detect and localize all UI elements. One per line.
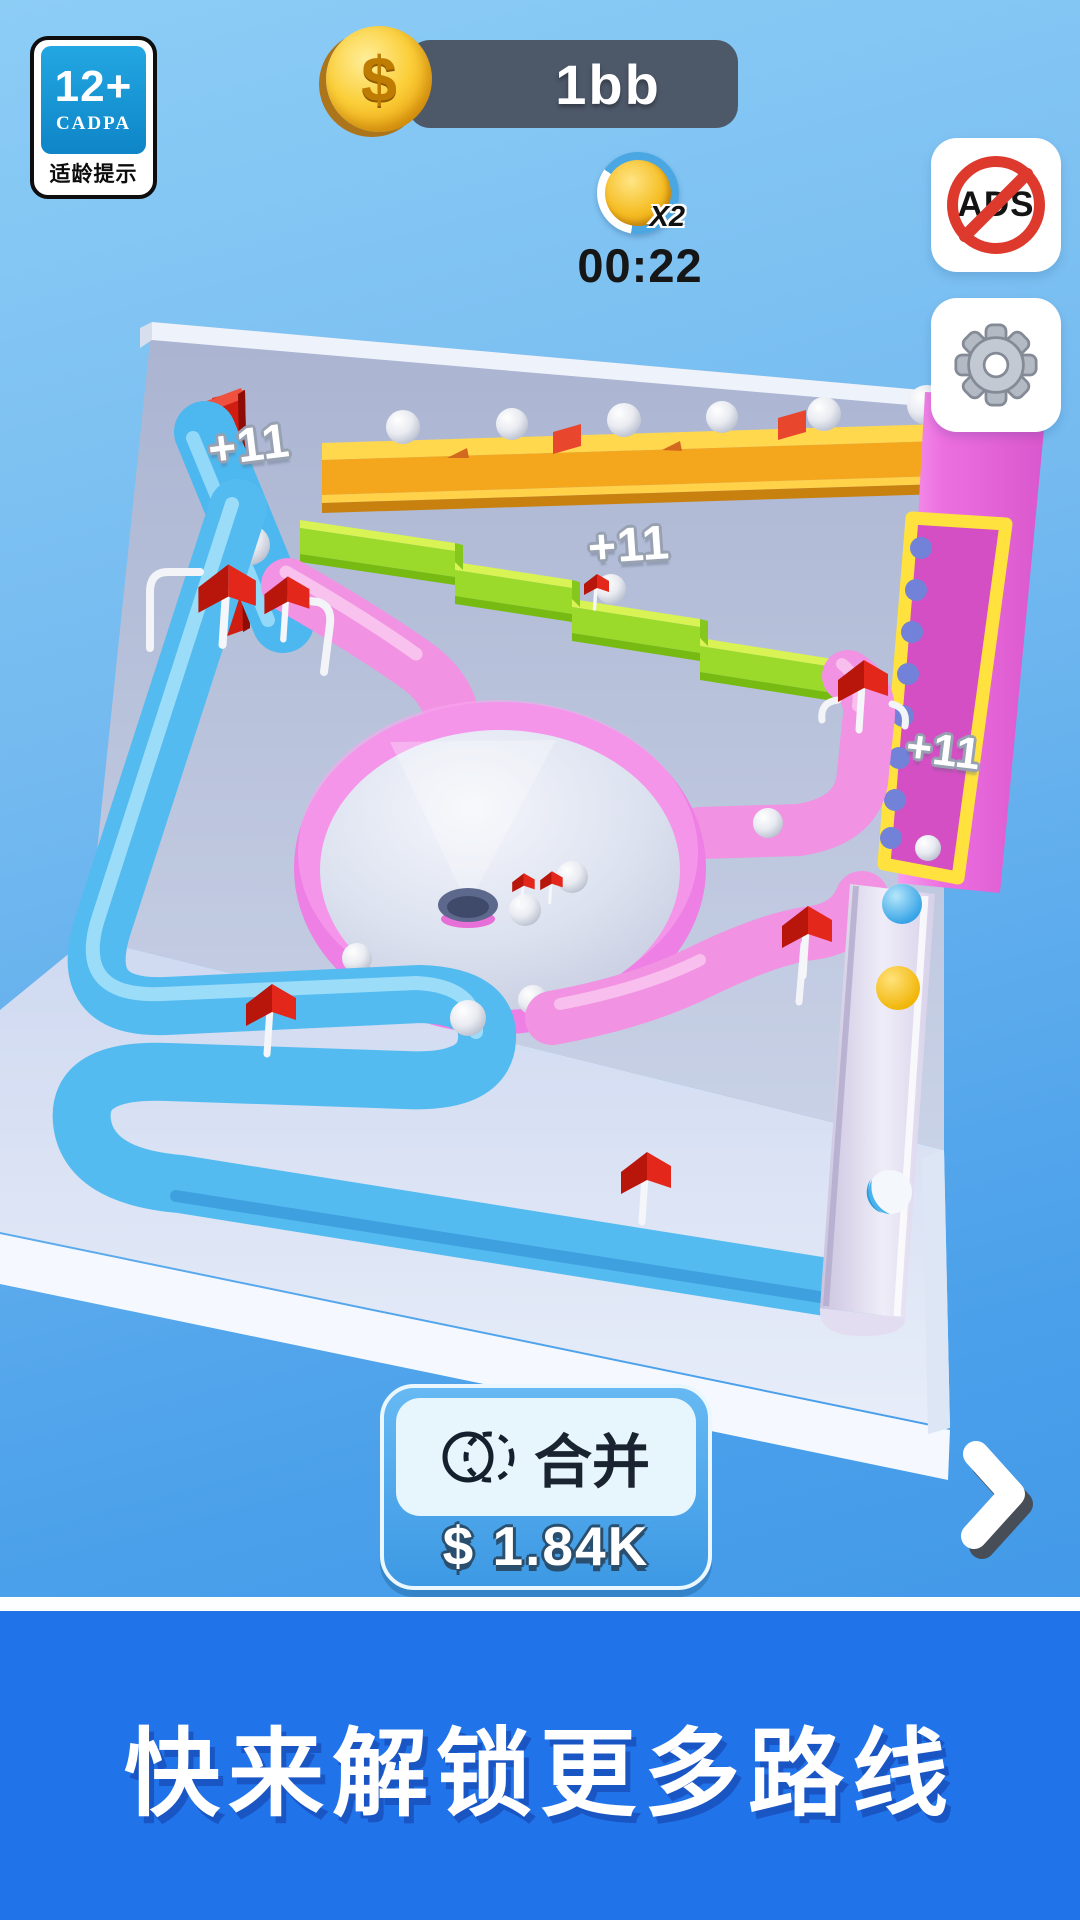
settings-button[interactable] <box>931 298 1061 432</box>
blue-ball <box>882 884 922 924</box>
age-rating-caption: 适龄提示 <box>41 154 146 191</box>
coin-icon: $ <box>326 26 432 132</box>
promo-banner: 快来解锁更多路线 <box>0 1611 1080 1920</box>
coin-amount: 1bb <box>555 52 661 117</box>
marble <box>496 408 528 440</box>
banner-divider <box>0 1597 1080 1611</box>
marble <box>807 397 841 431</box>
marble <box>706 401 738 433</box>
merge-button-face: 合并 <box>396 1398 696 1516</box>
coin-counter: 1bb <box>408 40 738 128</box>
no-ads-button[interactable]: ADS <box>931 138 1061 272</box>
marble <box>450 1000 486 1036</box>
marble <box>607 403 641 437</box>
age-rating-value: 12+ <box>55 65 133 109</box>
bonus-label-1: +11 <box>205 413 293 478</box>
marble <box>509 894 541 926</box>
booster-multiplier: X2 <box>650 201 685 234</box>
marble <box>915 835 941 861</box>
booster-countdown: 00:22 <box>545 238 735 293</box>
age-rating-panel: 12+ CADPA <box>41 46 146 154</box>
dollar-glyph: $ <box>361 42 397 116</box>
marble <box>753 808 783 838</box>
gear-icon <box>954 323 1038 407</box>
marble <box>386 410 420 444</box>
age-rating-badge: 12+ CADPA 适龄提示 <box>30 36 157 199</box>
merge-label: 合并 <box>534 1415 650 1499</box>
merge-circles-icon <box>442 1427 518 1487</box>
next-route-arrow[interactable] <box>936 1424 1046 1569</box>
bonus-label-3: +11 <box>903 722 984 781</box>
yellow-ball <box>876 966 920 1010</box>
bonus-label-2: +11 <box>586 515 671 576</box>
age-rating-org: CADPA <box>56 113 131 135</box>
promo-banner-text: 快来解锁更多路线 <box>124 1696 956 1835</box>
game-screen: 12+ CADPA 适龄提示 1bb $ X2 00:22 ADS <box>0 0 1080 1920</box>
merge-price: $ 1.84K <box>384 1514 708 1578</box>
merge-button[interactable]: 合并 $ 1.84K <box>380 1384 712 1590</box>
double-coins-booster[interactable]: X2 <box>597 152 679 234</box>
